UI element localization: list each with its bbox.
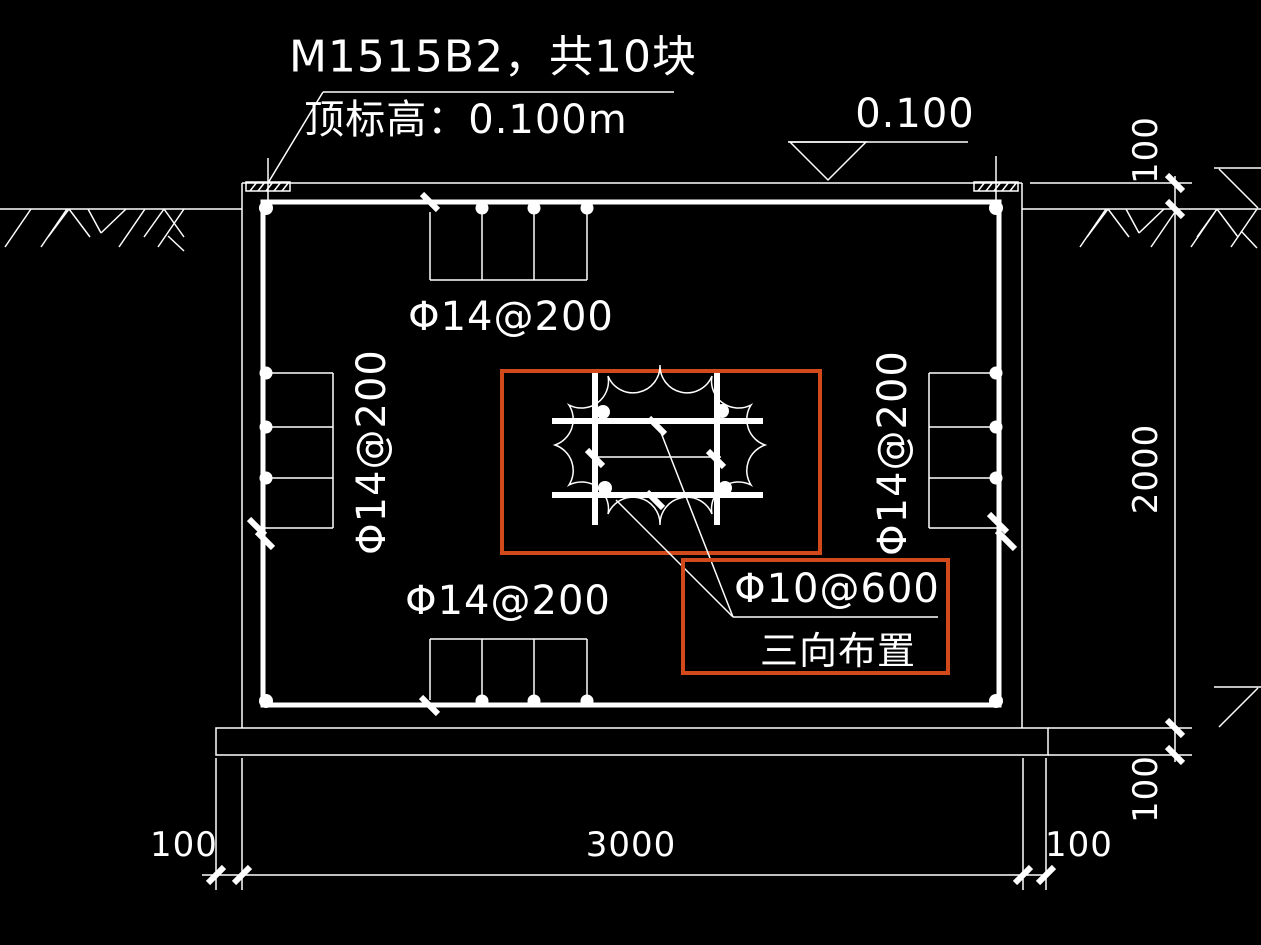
rebar-label-top: Φ14@200	[408, 294, 614, 340]
rebar-dot	[581, 202, 594, 215]
block-leader-note: M1515B2，共10块 顶标高：0.100m	[268, 32, 697, 184]
block-name-label: M1515B2，共10块	[289, 32, 697, 83]
elevation-value: 0.100	[855, 91, 975, 137]
highlight-box-detail	[502, 371, 820, 553]
elevation-triangle	[790, 142, 866, 180]
rebar-dot	[990, 421, 1003, 434]
rebar-dot	[528, 695, 541, 708]
dim-text-bottom-left: 100	[150, 825, 218, 865]
hatch-stroke	[144, 209, 164, 237]
dim-text-right-top: 100	[1126, 116, 1166, 184]
rebar-dot	[259, 201, 273, 215]
rebar-dot	[598, 481, 612, 495]
edge-marker-top-right	[1214, 168, 1261, 208]
rebar-dot	[476, 202, 489, 215]
rebar-dot	[990, 472, 1003, 485]
tie-note-label: 三向布置	[760, 629, 916, 673]
rebar-comb-left: Φ14@200	[249, 349, 395, 555]
rebar-dot	[259, 694, 273, 708]
rebar-dot	[989, 694, 1003, 708]
dim-text-bottom-right: 100	[1045, 825, 1113, 865]
hatch-stroke	[1197, 209, 1217, 237]
hatch-stroke	[1231, 209, 1257, 247]
hatch-stroke	[1151, 209, 1177, 247]
rebar-dot	[715, 404, 729, 418]
dim-text-bottom-center: 3000	[586, 825, 677, 865]
hatch-stroke	[1241, 231, 1257, 248]
hatch-stroke	[1217, 209, 1238, 237]
edge-marker-bottom-right	[1214, 687, 1261, 727]
hatch-stroke	[5, 209, 31, 247]
bedding-slab	[216, 728, 1048, 755]
rebar-comb-right: Φ14@200	[870, 350, 1015, 556]
center-detail	[502, 365, 820, 553]
hatch-stroke	[168, 236, 184, 251]
elevation-symbol: 0.100	[788, 91, 975, 180]
hatch-stroke	[48, 209, 69, 237]
hatch-stroke	[119, 209, 145, 247]
edge-marker-diagonal	[1219, 688, 1258, 727]
rebar-dot	[476, 695, 489, 708]
rebar-dot	[260, 421, 273, 434]
dimension-bottom: 100 3000 100	[150, 758, 1113, 890]
hatch-stroke	[158, 209, 184, 247]
rebar-dot	[260, 367, 273, 380]
hatch-stroke	[1139, 209, 1164, 233]
rebar-label-bottom: Φ14@200	[405, 578, 611, 624]
hatch-stroke	[69, 209, 90, 237]
rebar-comb-top: Φ14@200	[408, 194, 614, 340]
top-elevation-label: 顶标高：0.100m	[304, 97, 627, 143]
earth-hatch-left	[5, 209, 184, 251]
hatch-stroke	[1108, 209, 1129, 237]
hatch-stroke	[88, 209, 101, 233]
cad-drawing-canvas: Φ14@200 Φ14@200 Φ14@200	[0, 0, 1261, 945]
foundation-section-drawing: Φ14@200 Φ14@200 Φ14@200	[0, 0, 1261, 945]
edge-marker-diagonal	[1219, 169, 1258, 208]
pit-structure	[216, 156, 1048, 755]
rebar-dot	[718, 481, 732, 495]
rebar-comb-bottom: Φ14@200	[405, 578, 611, 714]
rebar-label-right: Φ14@200	[870, 350, 916, 556]
hatch-stroke	[1126, 209, 1139, 233]
earth-hatch-right	[1080, 209, 1257, 248]
rebar-dot	[581, 695, 594, 708]
hatch-stroke	[1087, 209, 1108, 237]
rebar-dot	[990, 367, 1003, 380]
rebar-label-left: Φ14@200	[349, 349, 395, 555]
tie-spacing-label: Φ10@600	[734, 566, 940, 612]
ground-left	[0, 209, 242, 251]
rebar-dot	[528, 202, 541, 215]
dim-text-right-middle: 2000	[1126, 424, 1166, 515]
rebar-dot	[260, 472, 273, 485]
hatch-stroke	[101, 209, 126, 233]
dim-text-right-bottom: 100	[1126, 755, 1166, 823]
leader-line	[658, 425, 733, 617]
rebar-dot	[989, 201, 1003, 215]
rebar-dot	[596, 405, 610, 419]
